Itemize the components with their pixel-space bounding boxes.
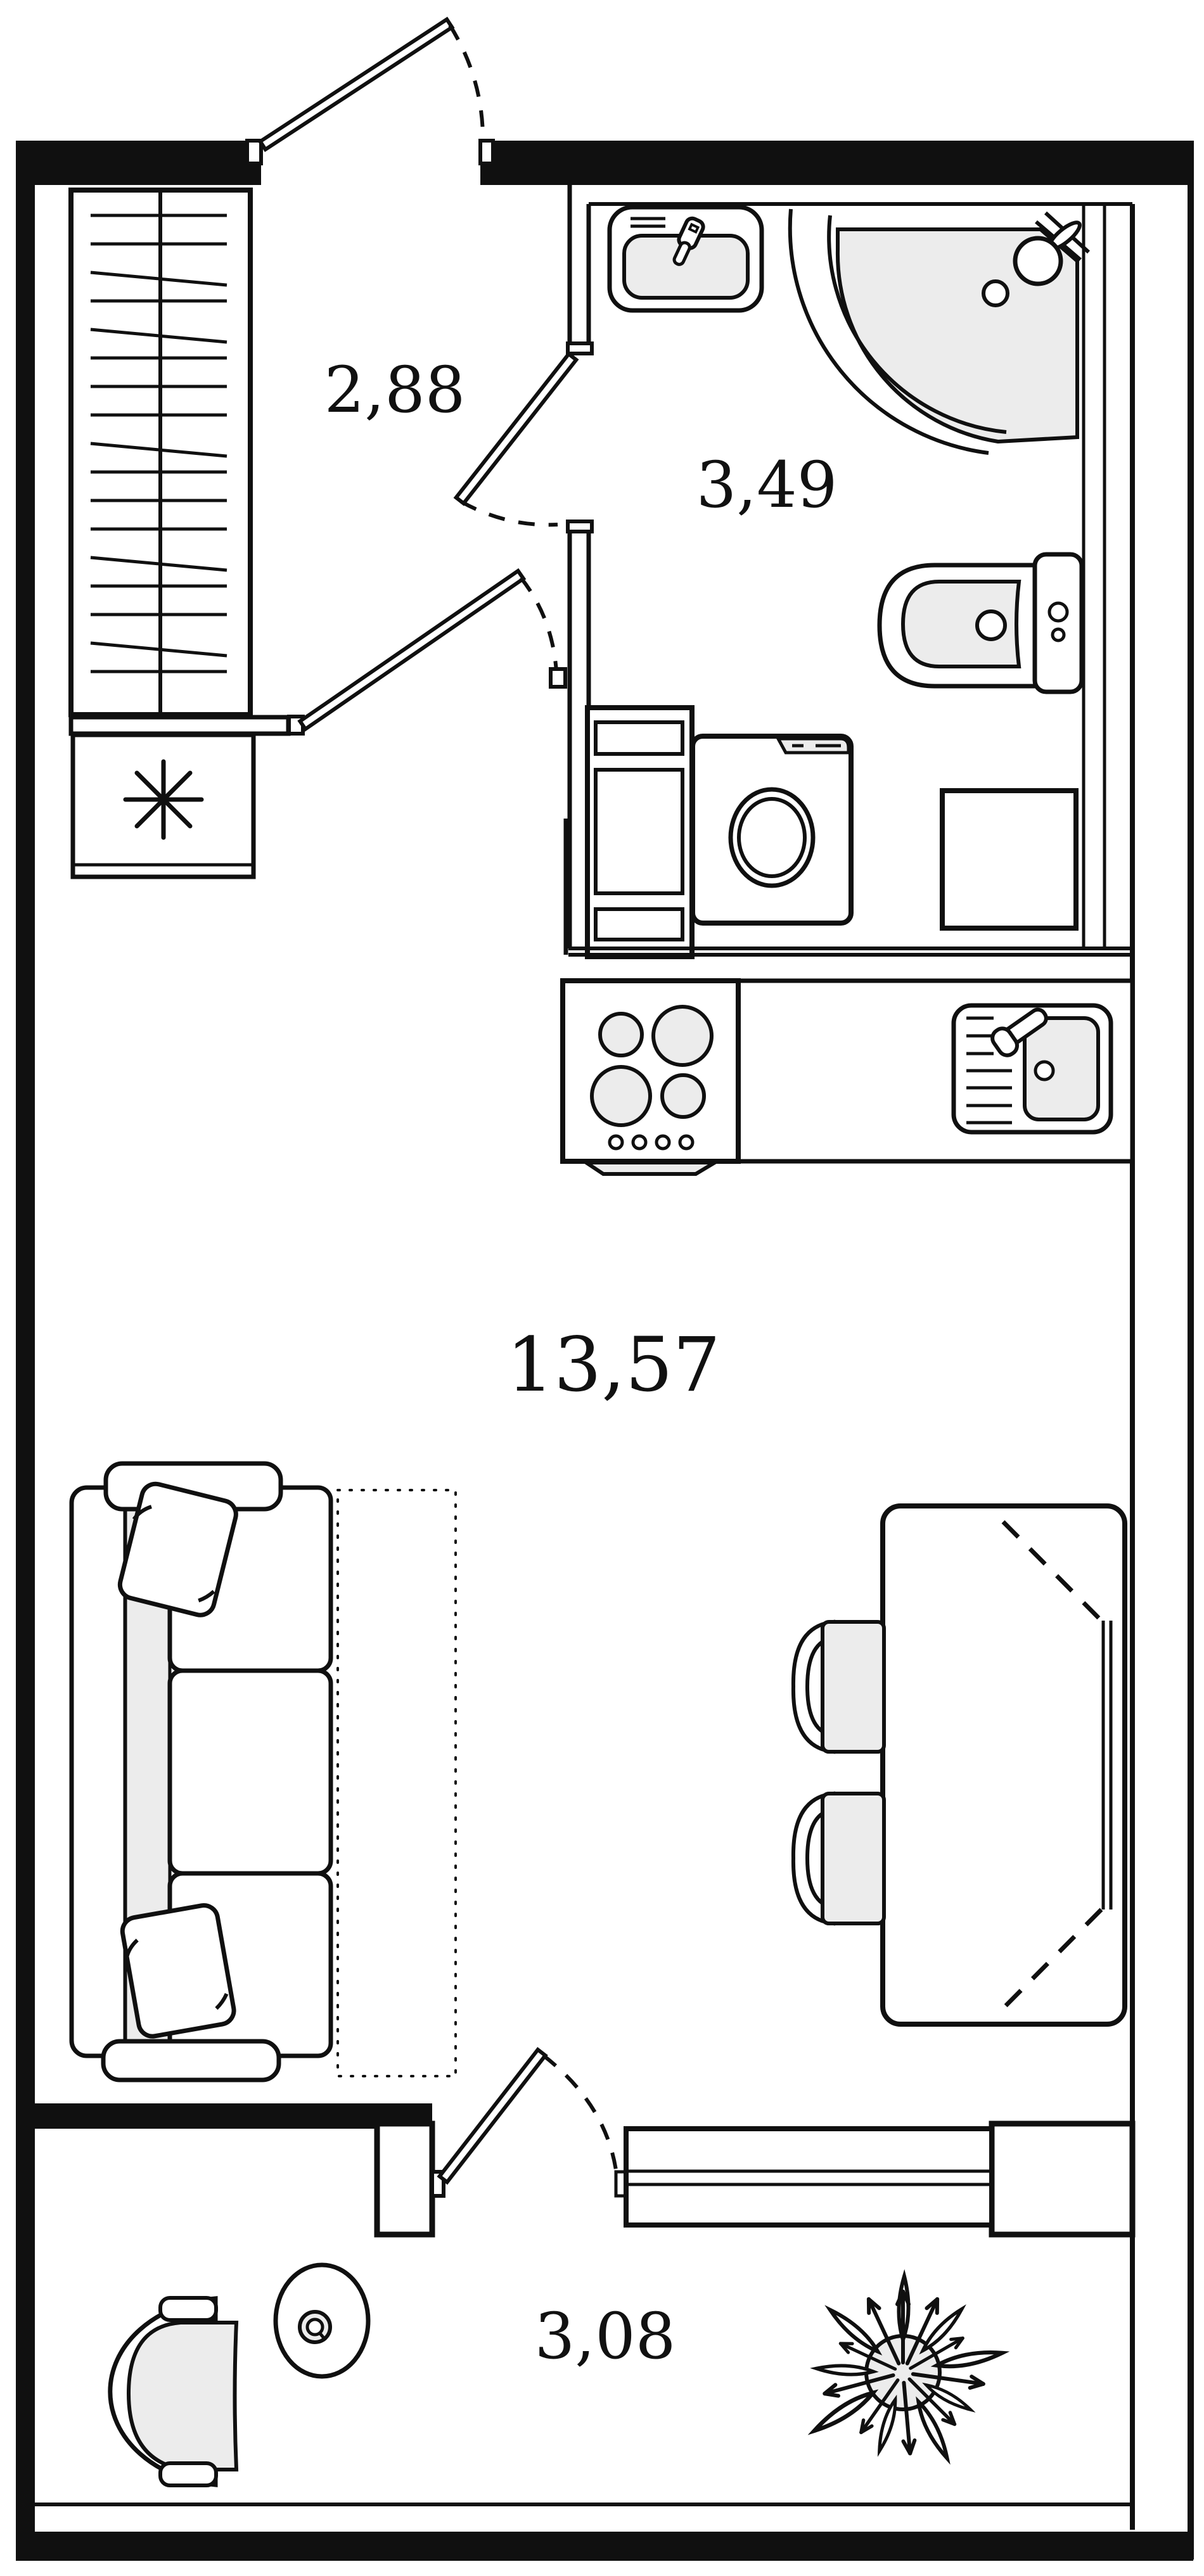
toilet-button-large-icon xyxy=(1049,603,1067,621)
kitchen-sink xyxy=(954,1002,1111,1132)
living-area-label: 13,57 xyxy=(506,1321,720,1408)
bathroom-cabinet xyxy=(587,708,692,957)
burner-icon xyxy=(592,1067,650,1125)
bathroom-door-leaf xyxy=(456,354,577,504)
living-room: 13,57 xyxy=(72,1321,1125,2080)
door-strike-stub xyxy=(551,669,565,687)
bathroom-door-swing-arc-icon xyxy=(461,502,558,525)
sofa-backrest xyxy=(72,1488,125,2056)
partition-bar xyxy=(71,717,288,734)
bathroom-room: 3,49 xyxy=(456,185,1132,957)
partition-wall-left xyxy=(35,2103,432,2129)
left-exterior-wall xyxy=(16,141,35,2561)
bathroom-door-hinge-stub xyxy=(568,343,592,354)
asterisk-marker-icon xyxy=(125,762,202,838)
entry-door-swing-arc-icon xyxy=(450,25,483,135)
side-table xyxy=(276,2265,368,2376)
chair-seat xyxy=(823,1622,884,1752)
chair xyxy=(793,1794,884,1923)
burner-icon xyxy=(662,1075,704,1117)
bathroom-partition-wall xyxy=(456,185,592,948)
burner-icon xyxy=(600,1014,642,1055)
potted-plant xyxy=(812,2276,1003,2460)
entry-door xyxy=(247,20,493,163)
wardrobe xyxy=(71,190,250,715)
cup-icon xyxy=(307,2319,323,2335)
table-top xyxy=(883,1506,1125,2024)
top-exterior-wall-right xyxy=(480,141,1191,185)
chair-seat xyxy=(823,1794,884,1923)
sink-drain-icon xyxy=(1035,1062,1053,1080)
armchair xyxy=(110,2298,236,2485)
sofa-armrest-bottom xyxy=(103,2041,279,2080)
shower-head-icon xyxy=(1015,238,1061,284)
corner-shower xyxy=(790,209,1089,453)
balcony-door xyxy=(432,2050,616,2196)
hallway-door-leaf xyxy=(300,571,523,729)
bottom-exterior-wall xyxy=(16,2532,1193,2561)
shower-drain-icon xyxy=(983,281,1008,305)
utility-box xyxy=(73,735,253,877)
entry-door-leaf xyxy=(260,20,452,150)
balcony-door-swing-arc-icon xyxy=(543,2055,616,2170)
partition-pier-left xyxy=(377,2124,432,2235)
chair xyxy=(793,1622,884,1752)
balcony-room: 3,08 xyxy=(110,2265,1003,2485)
armchair-seat xyxy=(129,2323,236,2470)
bathroom-area-label: 3,49 xyxy=(696,448,838,522)
floor-plan-drawing: 2,88 xyxy=(0,0,1204,2576)
kitchen xyxy=(563,981,1132,1174)
partition-pier-right xyxy=(992,2124,1132,2235)
washing-machine-door-inner xyxy=(739,799,805,876)
hallway-room: 2,88 xyxy=(71,190,565,877)
armchair-arm-top xyxy=(160,2298,216,2320)
sofa xyxy=(72,1463,331,2080)
hallway-door-swing-arc-icon xyxy=(521,578,556,672)
window-frame xyxy=(626,2129,992,2225)
toilet xyxy=(880,554,1082,692)
burner-icon xyxy=(653,1007,712,1065)
toilet-tank xyxy=(1035,554,1082,692)
dining-table xyxy=(883,1506,1125,2024)
top-exterior-wall-left xyxy=(16,141,261,185)
sofa-bed-extension-dotted-outline xyxy=(338,1490,456,2076)
balcony-area-label: 3,08 xyxy=(535,2299,676,2373)
bathroom-door-strike-stub xyxy=(568,521,592,532)
oven-handle xyxy=(586,1163,715,1174)
sofa-pillow xyxy=(120,1903,236,2039)
armchair-arm-bottom xyxy=(160,2463,216,2485)
sofa-cushion xyxy=(170,1671,331,1873)
floor-plan-page: 2,88 xyxy=(0,0,1204,2576)
washing-machine xyxy=(693,736,851,923)
balcony-window xyxy=(616,2129,992,2225)
entry-door-jamb-right xyxy=(480,141,493,163)
entry-door-jamb-left xyxy=(247,141,261,163)
hallway-area-label: 2,88 xyxy=(324,353,466,427)
wash-basin xyxy=(610,207,762,310)
cooktop xyxy=(563,981,738,1161)
toilet-drain-icon xyxy=(977,611,1005,639)
toilet-button-small-icon xyxy=(1053,629,1064,641)
bathroom-shelf-box xyxy=(942,791,1076,928)
